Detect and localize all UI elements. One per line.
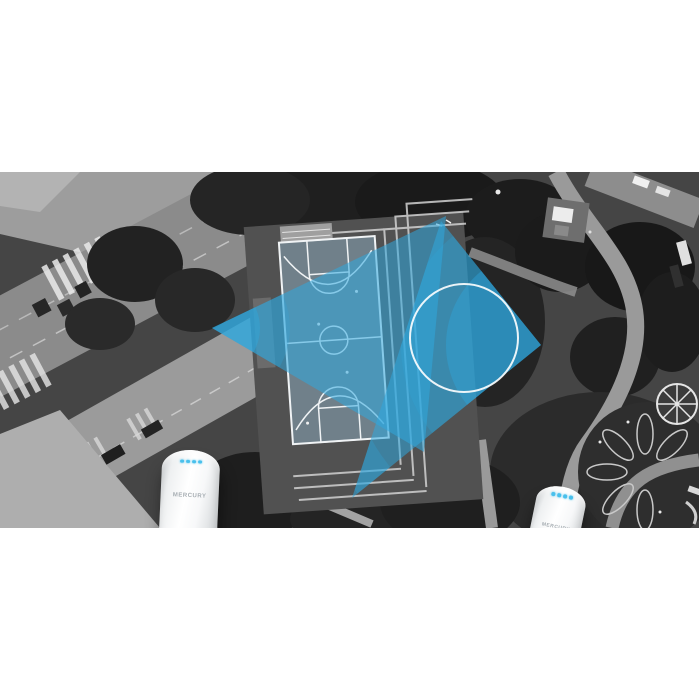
led-icon xyxy=(192,460,196,464)
pavilion xyxy=(542,197,589,242)
brand-label: MERCURY xyxy=(531,519,581,528)
access-point-left: MERCURY xyxy=(157,449,220,528)
led-icon xyxy=(557,493,561,497)
led-icon xyxy=(186,459,190,463)
spoked-wheel xyxy=(657,384,697,424)
brand-label: MERCURY xyxy=(160,492,218,501)
led-icon xyxy=(198,460,202,464)
led-icon xyxy=(563,494,567,498)
led-icon xyxy=(569,495,573,499)
park-scene xyxy=(0,172,699,528)
aerial-photo: MERCURY MERCURY xyxy=(0,172,699,528)
led-indicators xyxy=(162,458,220,464)
led-icon xyxy=(180,459,184,463)
led-icon xyxy=(551,492,555,496)
